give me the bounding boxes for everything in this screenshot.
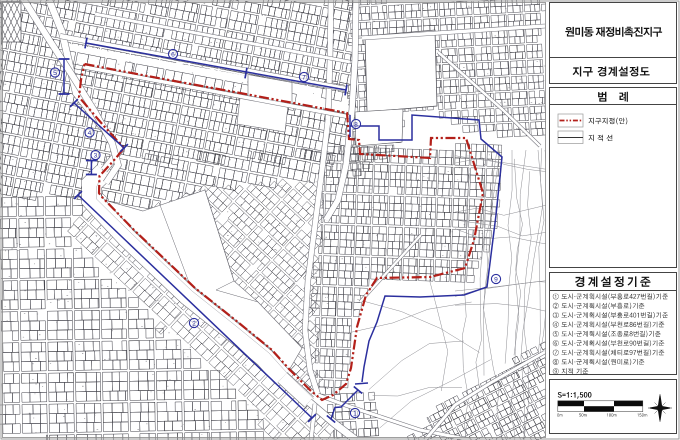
svg-text:5: 5 — [53, 70, 57, 77]
svg-text:2: 2 — [192, 320, 196, 327]
svg-text:4: 4 — [88, 130, 92, 137]
svg-text:8: 8 — [354, 121, 358, 128]
svg-text:9: 9 — [494, 276, 498, 283]
svg-text:1: 1 — [353, 410, 357, 417]
svg-text:7: 7 — [302, 74, 306, 81]
svg-text:6: 6 — [171, 51, 175, 58]
svg-text:3: 3 — [94, 152, 98, 159]
